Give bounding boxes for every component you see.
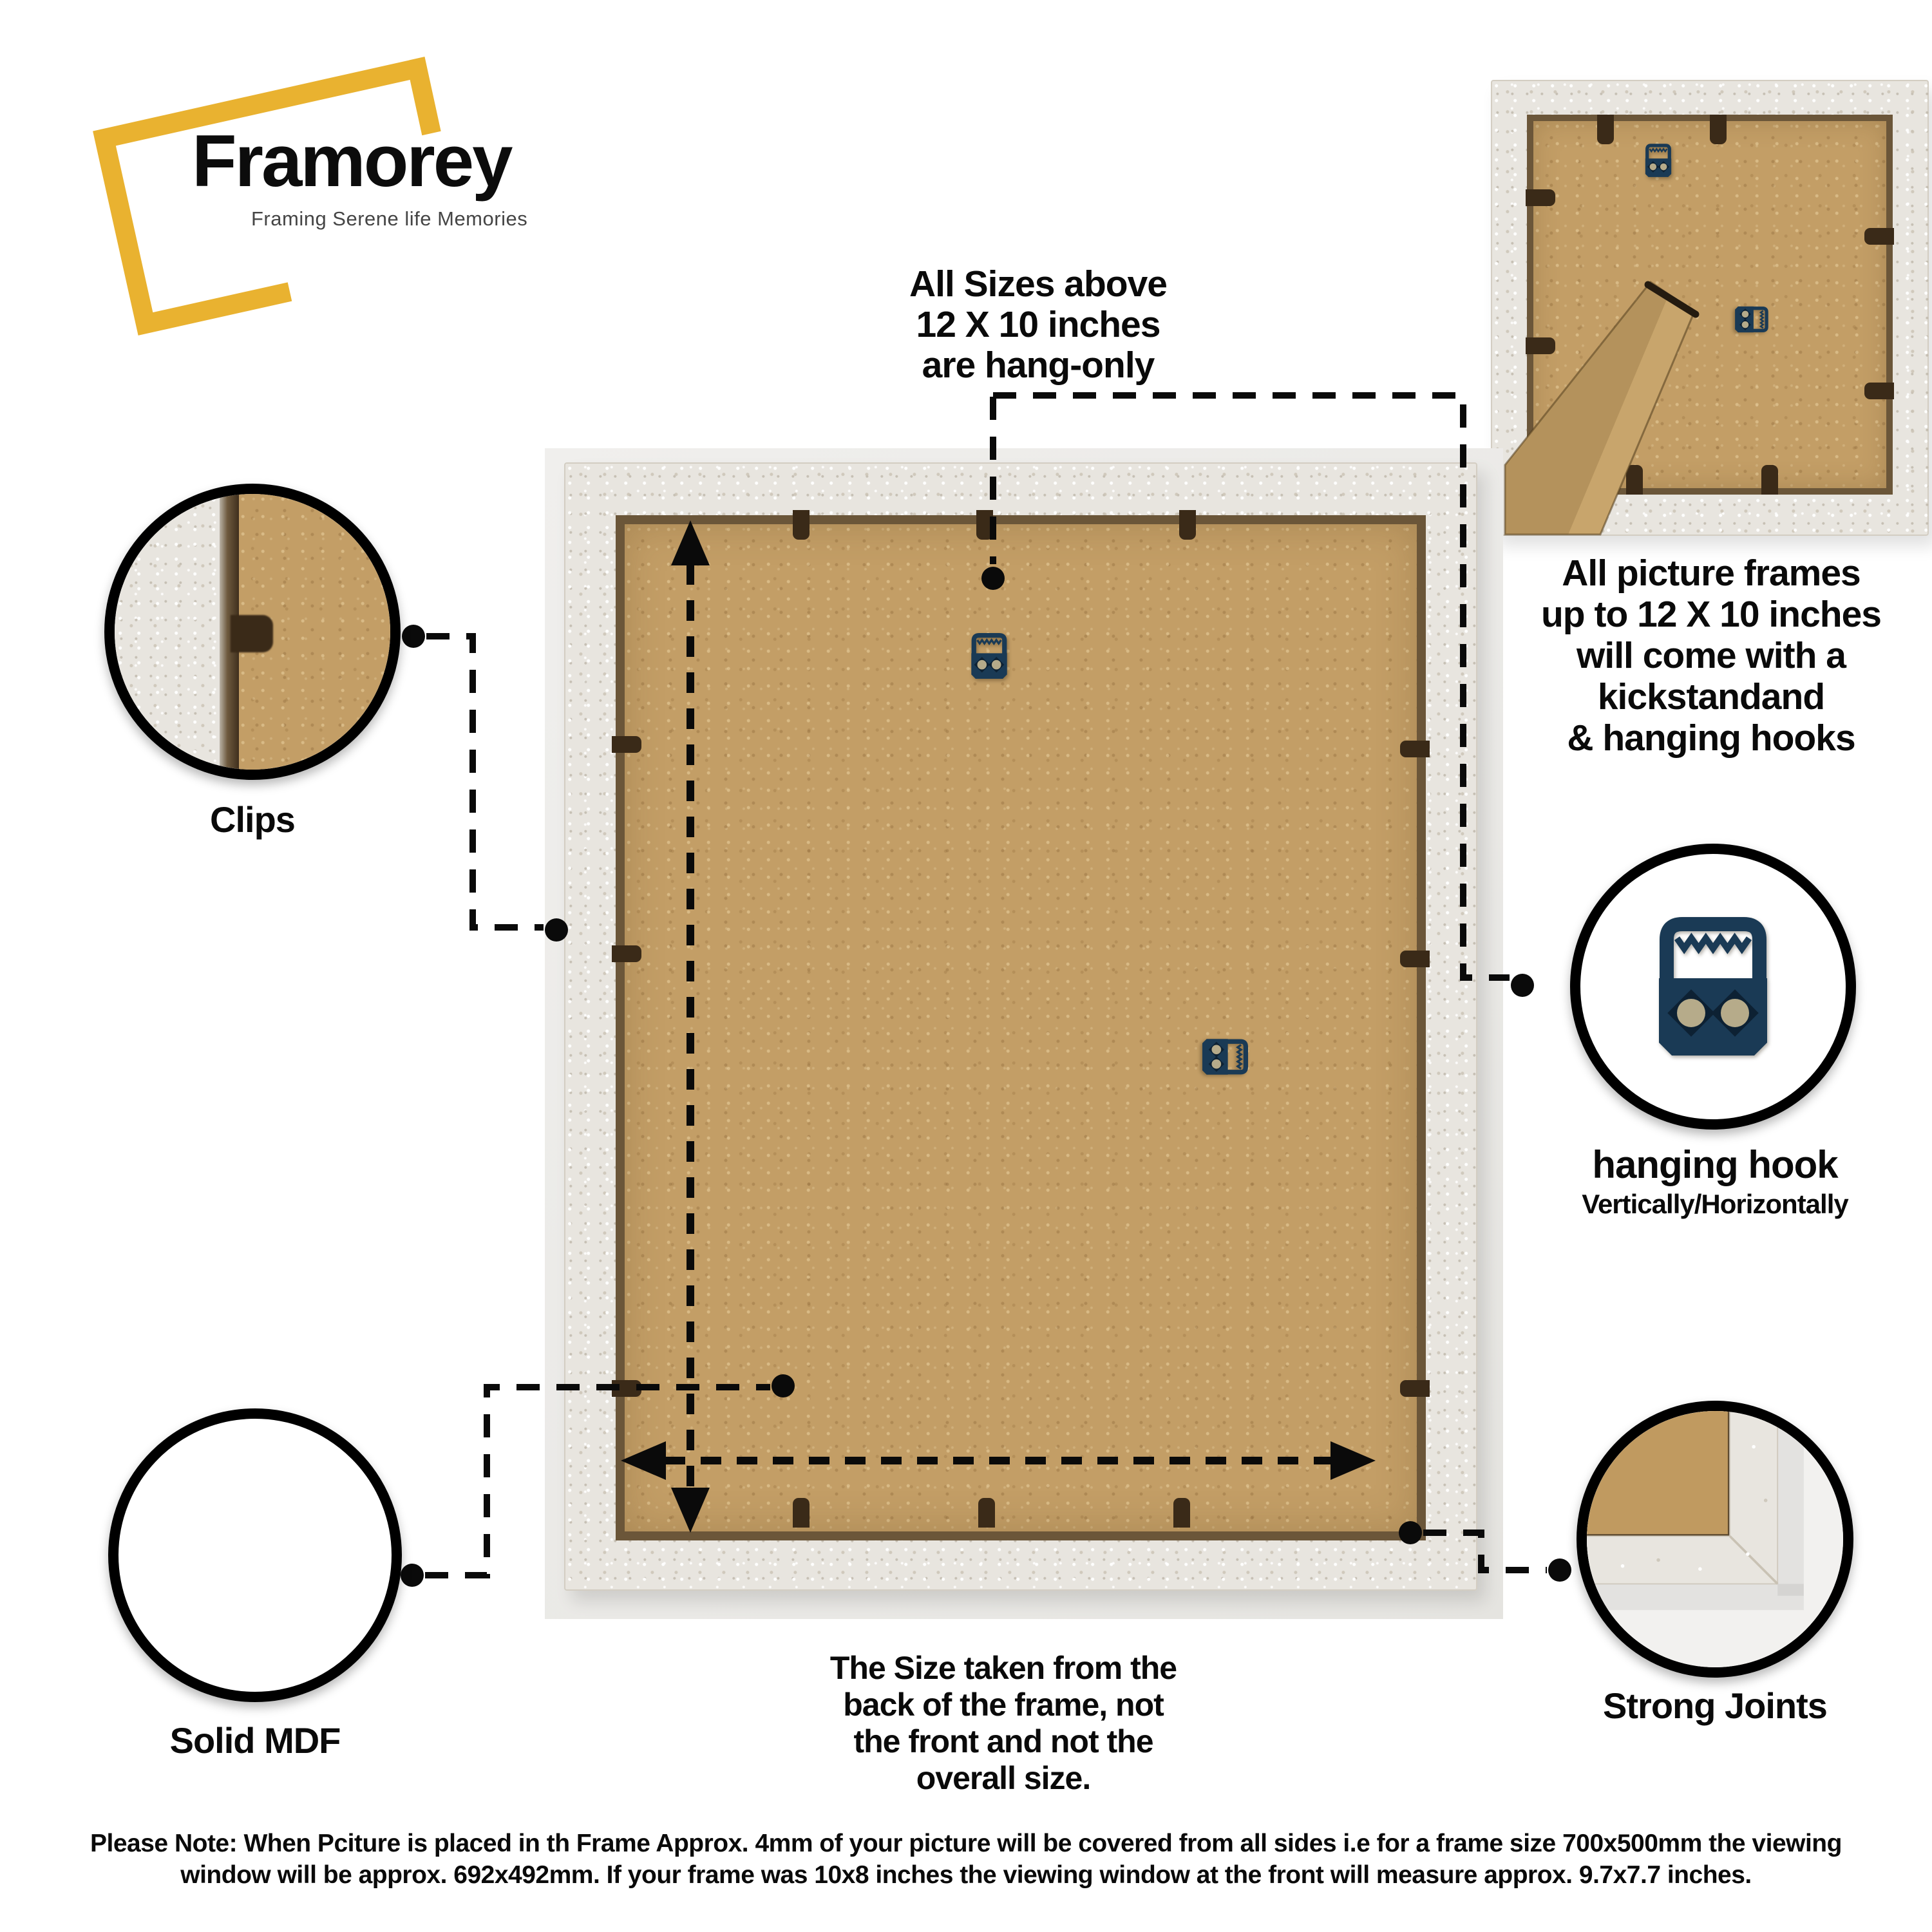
clips-frame-edge (115, 494, 220, 770)
frame-corner-graphic (1587, 1411, 1843, 1667)
hanging-hook-label: hanging hook (1538, 1142, 1892, 1187)
clip-icon (231, 615, 273, 652)
hanging-hook-callout-circle (1570, 844, 1856, 1130)
solid-mdf-label: Solid MDF (108, 1719, 402, 1761)
hanging-hook-sublabel: Vertically/Horizontally (1525, 1189, 1905, 1220)
arrowheads-and-dots (401, 520, 1571, 1587)
clips-callout-circle (104, 484, 401, 780)
leader-clips (426, 636, 544, 927)
infographic-canvas: Framorey Framing Serene life Memories Al… (0, 0, 1932, 1932)
strong-joints-label: Strong Joints (1544, 1685, 1886, 1727)
strong-joints-callout-circle (1577, 1401, 1853, 1678)
solid-mdf-callout-circle (108, 1408, 402, 1702)
hang-only-note: All Sizes above 12 X 10 inches are hang-… (858, 264, 1218, 386)
size-note: The Size taken from the back of the fram… (810, 1650, 1197, 1797)
hanging-hook-icon (1649, 902, 1777, 1065)
clips-label: Clips (104, 799, 401, 840)
leader-to-hook-circle (993, 395, 1510, 978)
footer-note: Please Note: When Pciture is placed in t… (45, 1828, 1887, 1891)
leader-mdf (425, 1387, 770, 1575)
leader-joints (1423, 1533, 1547, 1570)
